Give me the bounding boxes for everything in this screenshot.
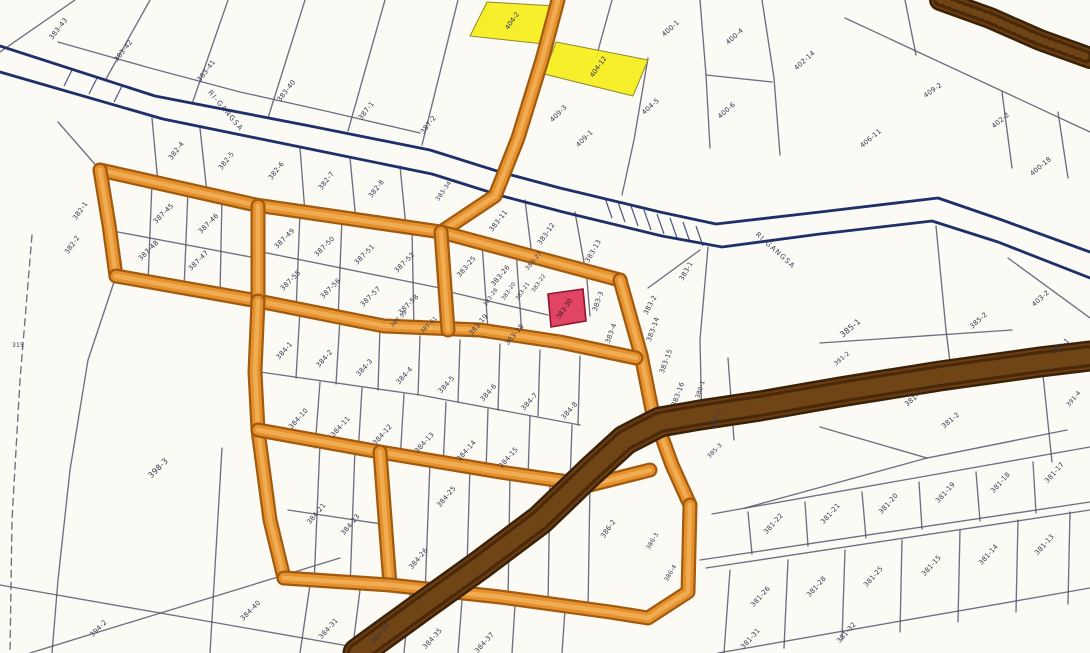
map-viewport: 404-2404-12383-30383-43383-42383-41383-4…	[0, 0, 1090, 653]
cadastral-map-canvas[interactable]: 404-2404-12383-30383-43383-42383-41383-4…	[0, 0, 1090, 653]
parcel-label: 315	[12, 342, 24, 349]
